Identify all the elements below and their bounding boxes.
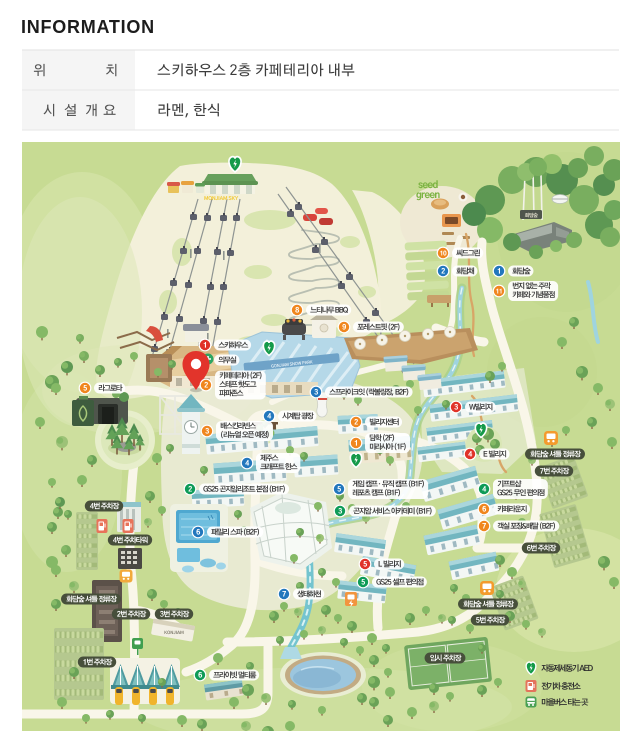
svg-text:INFORMATION: INFORMATION: [21, 17, 155, 37]
